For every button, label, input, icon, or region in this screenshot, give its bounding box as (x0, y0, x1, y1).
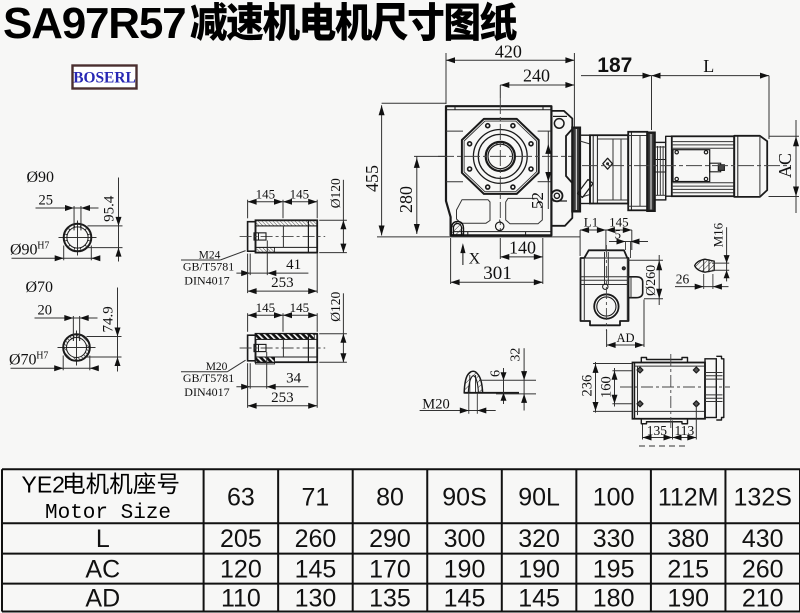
svg-text:145: 145 (444, 584, 486, 612)
svg-text:AD: AD (616, 331, 634, 345)
svg-text:90S: 90S (442, 484, 486, 512)
svg-text:Ø90: Ø90 (27, 169, 55, 186)
svg-text:260: 260 (742, 555, 784, 583)
svg-text:GB/T5781: GB/T5781 (183, 371, 234, 385)
svg-text:190: 190 (518, 555, 560, 583)
svg-text:32: 32 (509, 348, 524, 362)
svg-text:26: 26 (676, 272, 690, 287)
svg-text:145: 145 (290, 187, 310, 202)
svg-text:6: 6 (489, 370, 504, 377)
svg-text:145: 145 (256, 187, 276, 202)
svg-text:H7: H7 (37, 241, 49, 252)
svg-text:113: 113 (675, 423, 695, 438)
svg-text:300: 300 (444, 525, 486, 553)
svg-text:GB/T5781: GB/T5781 (183, 259, 234, 273)
svg-text:320: 320 (518, 525, 560, 553)
svg-text:135: 135 (369, 584, 411, 612)
svg-text:253: 253 (271, 275, 294, 291)
svg-text:145: 145 (256, 300, 276, 315)
svg-text:YE2: YE2 (22, 471, 65, 497)
svg-text:Ø70: Ø70 (9, 352, 37, 369)
svg-text:Ø120: Ø120 (328, 292, 343, 322)
svg-text:63: 63 (227, 484, 255, 512)
svg-text:187: 187 (597, 54, 632, 77)
svg-text:190: 190 (444, 555, 486, 583)
svg-text:20: 20 (38, 303, 53, 319)
svg-text:SA97R57: SA97R57 (3, 0, 185, 48)
svg-text:M16: M16 (711, 222, 726, 247)
svg-text:260: 260 (295, 525, 337, 553)
svg-text:Ø120: Ø120 (328, 178, 343, 208)
svg-text:301: 301 (483, 263, 512, 284)
svg-text:74.9: 74.9 (101, 306, 117, 332)
svg-text:253: 253 (271, 390, 294, 406)
svg-text:Ø260: Ø260 (644, 265, 659, 296)
svg-text:AD: AD (85, 584, 120, 612)
svg-text:420: 420 (495, 41, 522, 61)
svg-text:71: 71 (302, 484, 330, 512)
svg-text:X: X (469, 250, 481, 267)
svg-text:BOSERL: BOSERL (73, 70, 135, 87)
svg-text:34: 34 (286, 371, 302, 387)
svg-text:190: 190 (667, 584, 709, 612)
svg-text:180: 180 (593, 584, 635, 612)
svg-text:100: 100 (593, 484, 635, 512)
svg-text:280: 280 (396, 186, 416, 213)
svg-text:52: 52 (528, 192, 547, 209)
svg-text:110: 110 (221, 584, 261, 612)
svg-text:41: 41 (286, 257, 301, 273)
svg-text:236: 236 (579, 375, 595, 397)
svg-text:Motor Size: Motor Size (45, 502, 171, 525)
svg-text:Ø70: Ø70 (26, 279, 54, 296)
svg-text:95.4: 95.4 (102, 195, 118, 222)
svg-text:430: 430 (742, 525, 784, 553)
svg-text:L1: L1 (584, 215, 598, 230)
svg-text:145: 145 (290, 300, 310, 315)
svg-text:160: 160 (598, 376, 614, 398)
svg-text:140: 140 (509, 238, 536, 258)
svg-text:L: L (703, 56, 714, 76)
svg-text:AC: AC (775, 153, 795, 178)
svg-text:135: 135 (647, 423, 668, 438)
svg-text:L: L (96, 525, 110, 553)
svg-text:145: 145 (518, 584, 560, 612)
svg-text:455: 455 (362, 165, 382, 192)
svg-text:215: 215 (667, 555, 709, 583)
svg-text:120: 120 (220, 555, 262, 583)
svg-text:DIN4017: DIN4017 (184, 273, 229, 287)
svg-text:380: 380 (667, 525, 709, 553)
svg-text:330: 330 (593, 525, 635, 553)
svg-text:25: 25 (39, 193, 54, 209)
svg-text:112M: 112M (658, 484, 719, 512)
svg-text:145: 145 (295, 555, 337, 583)
svg-text:H7: H7 (36, 351, 48, 362)
svg-text:170: 170 (369, 555, 411, 583)
svg-text:132S: 132S (734, 484, 792, 512)
svg-text:130: 130 (295, 584, 337, 612)
svg-text:290: 290 (369, 525, 411, 553)
svg-text:205: 205 (220, 525, 262, 553)
svg-text:210: 210 (742, 584, 784, 612)
svg-text:195: 195 (593, 555, 635, 583)
svg-text:Ø90: Ø90 (10, 242, 38, 259)
svg-text:DIN4017: DIN4017 (184, 385, 229, 399)
svg-text:80: 80 (376, 484, 404, 512)
svg-text:AC: AC (85, 555, 120, 583)
svg-text:90L: 90L (518, 484, 560, 512)
svg-text:240: 240 (523, 66, 550, 86)
